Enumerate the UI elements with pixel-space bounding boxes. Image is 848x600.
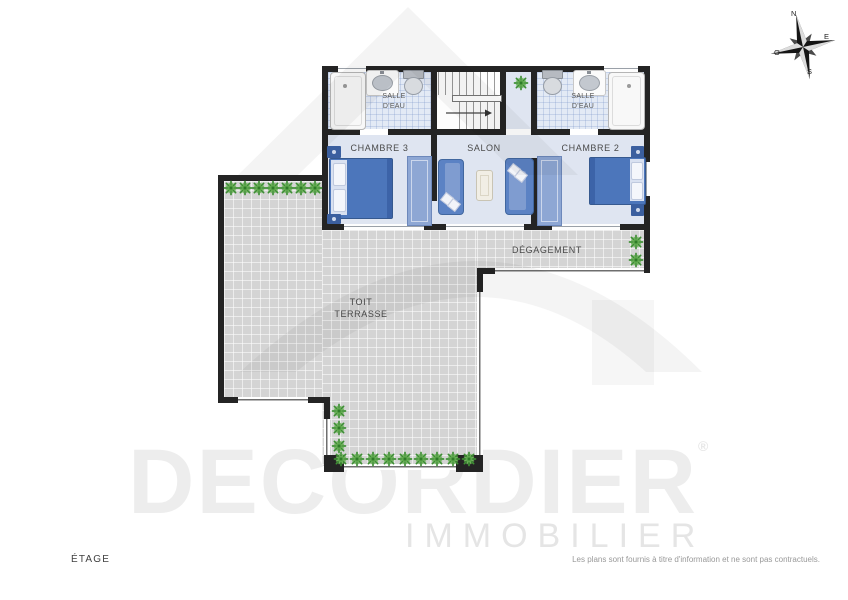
bed-icon: [329, 158, 393, 219]
stair-handrail: [452, 95, 502, 102]
wardrobe-icon: [407, 156, 432, 226]
floor-title: ÉTAGE: [71, 554, 110, 565]
terrace-floor: [224, 181, 322, 397]
window-opening: [552, 224, 620, 230]
stair-direction-arrow-icon: [444, 107, 494, 119]
compass-star-icon: [757, 3, 848, 95]
nightstand-icon: [327, 214, 341, 224]
wardrobe-icon: [537, 156, 562, 226]
railing-segment: [495, 268, 644, 274]
wall-segment: [388, 129, 506, 135]
plant-icon: [628, 252, 644, 268]
compass-label-north: N: [791, 9, 796, 18]
floor-plan-canvas: DECORDIER® IMMOBILIER: [0, 0, 848, 600]
wall-segment: [531, 66, 537, 129]
wall-segment: [644, 230, 650, 273]
compass-label-east: E: [824, 32, 829, 41]
room-label-chambre3: CHAMBRE 3: [328, 142, 431, 154]
wall-segment: [218, 397, 238, 403]
plant-icon: [307, 180, 323, 196]
railing-segment: [238, 397, 308, 403]
room-label-chambre2: CHAMBRE 2: [537, 142, 644, 154]
shower-icon: [330, 72, 366, 130]
railing-segment: [477, 292, 483, 455]
floor-plan: SALLE D'EAU SALLE D'EAU CHAMBRE 3 SALON …: [0, 0, 848, 600]
plant-icon: [445, 451, 461, 467]
wall-segment: [531, 129, 570, 135]
plant-icon: [397, 451, 413, 467]
nightstand-icon: [631, 204, 644, 216]
compass-rose: N E S O: [757, 3, 848, 95]
coffee-table-icon: [476, 170, 493, 201]
room-label-degagement: DÉGAGEMENT: [477, 244, 617, 256]
plant-icon: [365, 451, 381, 467]
room-label-toit-terrasse: TOIT TERRASSE: [311, 296, 411, 320]
compass-label-west: O: [774, 48, 780, 57]
wall-segment: [477, 268, 483, 292]
plant-icon: [333, 451, 349, 467]
room-label-line: TERRASSE: [334, 309, 387, 319]
stairs-icon: [438, 72, 500, 95]
window-opening: [446, 224, 524, 230]
wall-segment: [324, 397, 330, 419]
room-label-salle-eau-right: SALLE D'EAU: [553, 92, 613, 112]
compass-label-south: S: [807, 67, 812, 76]
wall-segment: [218, 175, 224, 403]
plant-icon: [429, 451, 445, 467]
wall-segment: [431, 66, 437, 135]
railing-segment: [324, 419, 330, 457]
room-label-salle-eau-left: SALLE D'EAU: [364, 92, 424, 112]
bed-icon: [589, 157, 646, 205]
room-label-line: TOIT: [350, 297, 373, 307]
plant-icon: [349, 451, 365, 467]
plant-icon: [331, 403, 347, 419]
plant-icon: [461, 451, 477, 467]
room-label-line: D'EAU: [383, 103, 405, 110]
plant-icon: [413, 451, 429, 467]
disclaimer-text: Les plans sont fournis à titre d'informa…: [572, 555, 820, 564]
room-label-line: SALLE: [571, 93, 594, 100]
room-label-salon: SALON: [437, 142, 531, 154]
plant-icon: [513, 75, 529, 91]
room-label-line: D'EAU: [572, 103, 594, 110]
room-label-line: SALLE: [382, 93, 405, 100]
plant-icon: [331, 420, 347, 436]
plant-icon: [628, 234, 644, 250]
plant-icon: [381, 451, 397, 467]
shower-icon: [608, 72, 645, 130]
